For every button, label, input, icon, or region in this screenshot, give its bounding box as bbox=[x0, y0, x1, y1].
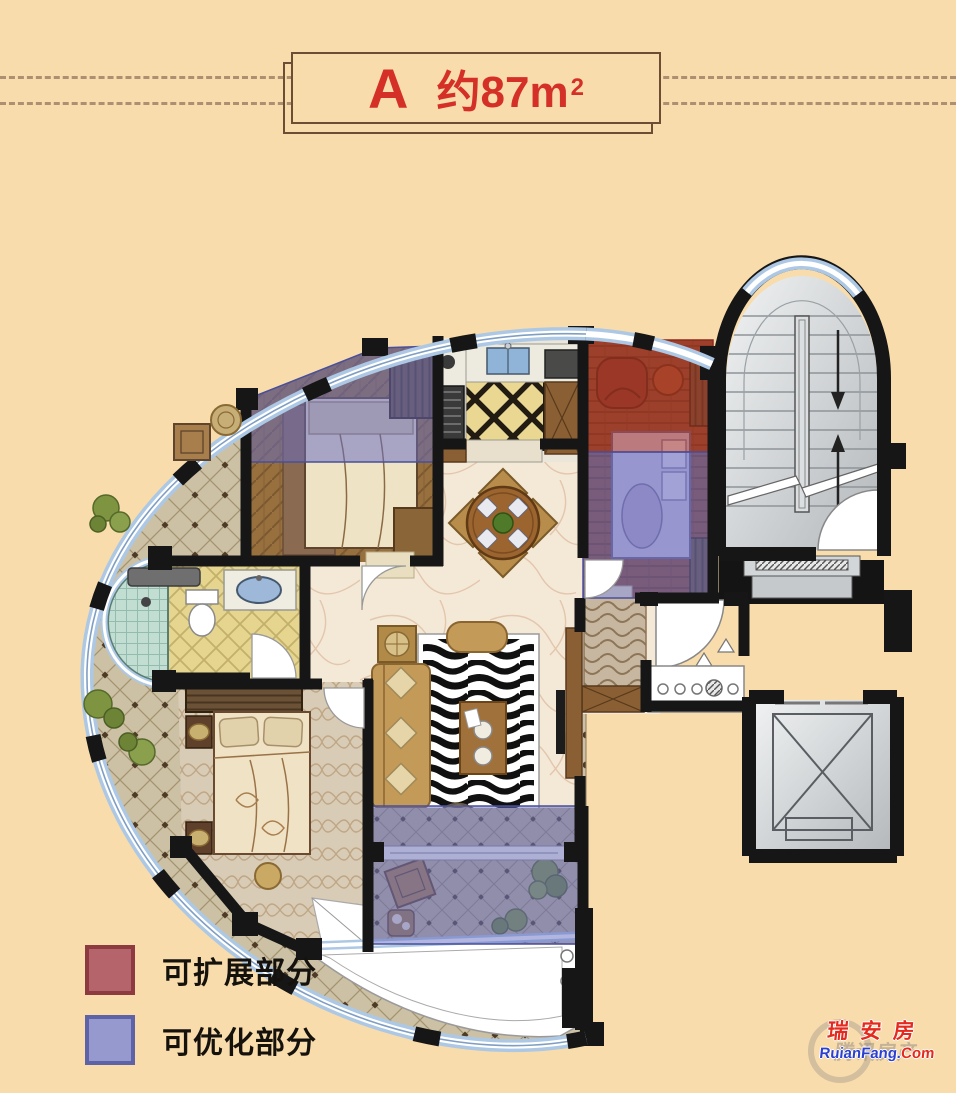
floor-plan bbox=[0, 0, 956, 1093]
legend-item-optimizable: 可优化部分 bbox=[84, 1014, 317, 1066]
legend-swatch-optimizable bbox=[84, 1014, 136, 1066]
floorplan-page: { "page": { "background_color": "#f9dcab… bbox=[0, 0, 956, 1093]
legend: 可扩展部分 可优化部分 bbox=[84, 944, 317, 1084]
centerpiece-plant bbox=[493, 513, 513, 533]
toilet bbox=[186, 590, 218, 636]
legend-item-expandable: 可扩展部分 bbox=[84, 944, 317, 996]
entry-rug bbox=[584, 594, 646, 690]
watermark-brand-cn: 瑞安房 bbox=[800, 1015, 953, 1045]
entry-closet bbox=[582, 686, 644, 712]
legend-swatch-expandable bbox=[84, 944, 136, 996]
optimizable-zone-balcony bbox=[370, 806, 582, 944]
kitchen-pass-counter bbox=[466, 440, 542, 462]
coffee-table bbox=[460, 702, 506, 774]
kitchen-sink bbox=[487, 343, 529, 374]
master-stool bbox=[255, 863, 281, 889]
master-nightstand-top bbox=[186, 716, 212, 748]
entry-door bbox=[656, 600, 734, 668]
watermark-brand-url: RuianFang.Com bbox=[801, 1045, 953, 1062]
legend-label-optimizable: 可优化部分 bbox=[162, 1018, 317, 1062]
bathroom-sink bbox=[224, 570, 296, 610]
side-table-top bbox=[378, 626, 416, 662]
watermark: 腾讯房产 瑞安房 RuianFang.Com bbox=[802, 1015, 952, 1085]
ottoman bbox=[447, 622, 507, 652]
elevator bbox=[753, 700, 894, 852]
watermark-url-suffix: Com bbox=[900, 1045, 935, 1062]
kitchen-cabinet-dark bbox=[545, 350, 579, 378]
legend-label-expandable: 可扩展部分 bbox=[162, 948, 317, 992]
master-bed bbox=[214, 712, 310, 854]
watermark-url-prefix: RuianFang. bbox=[819, 1045, 902, 1062]
sofa bbox=[372, 664, 430, 808]
kitchen-floor bbox=[460, 378, 544, 450]
